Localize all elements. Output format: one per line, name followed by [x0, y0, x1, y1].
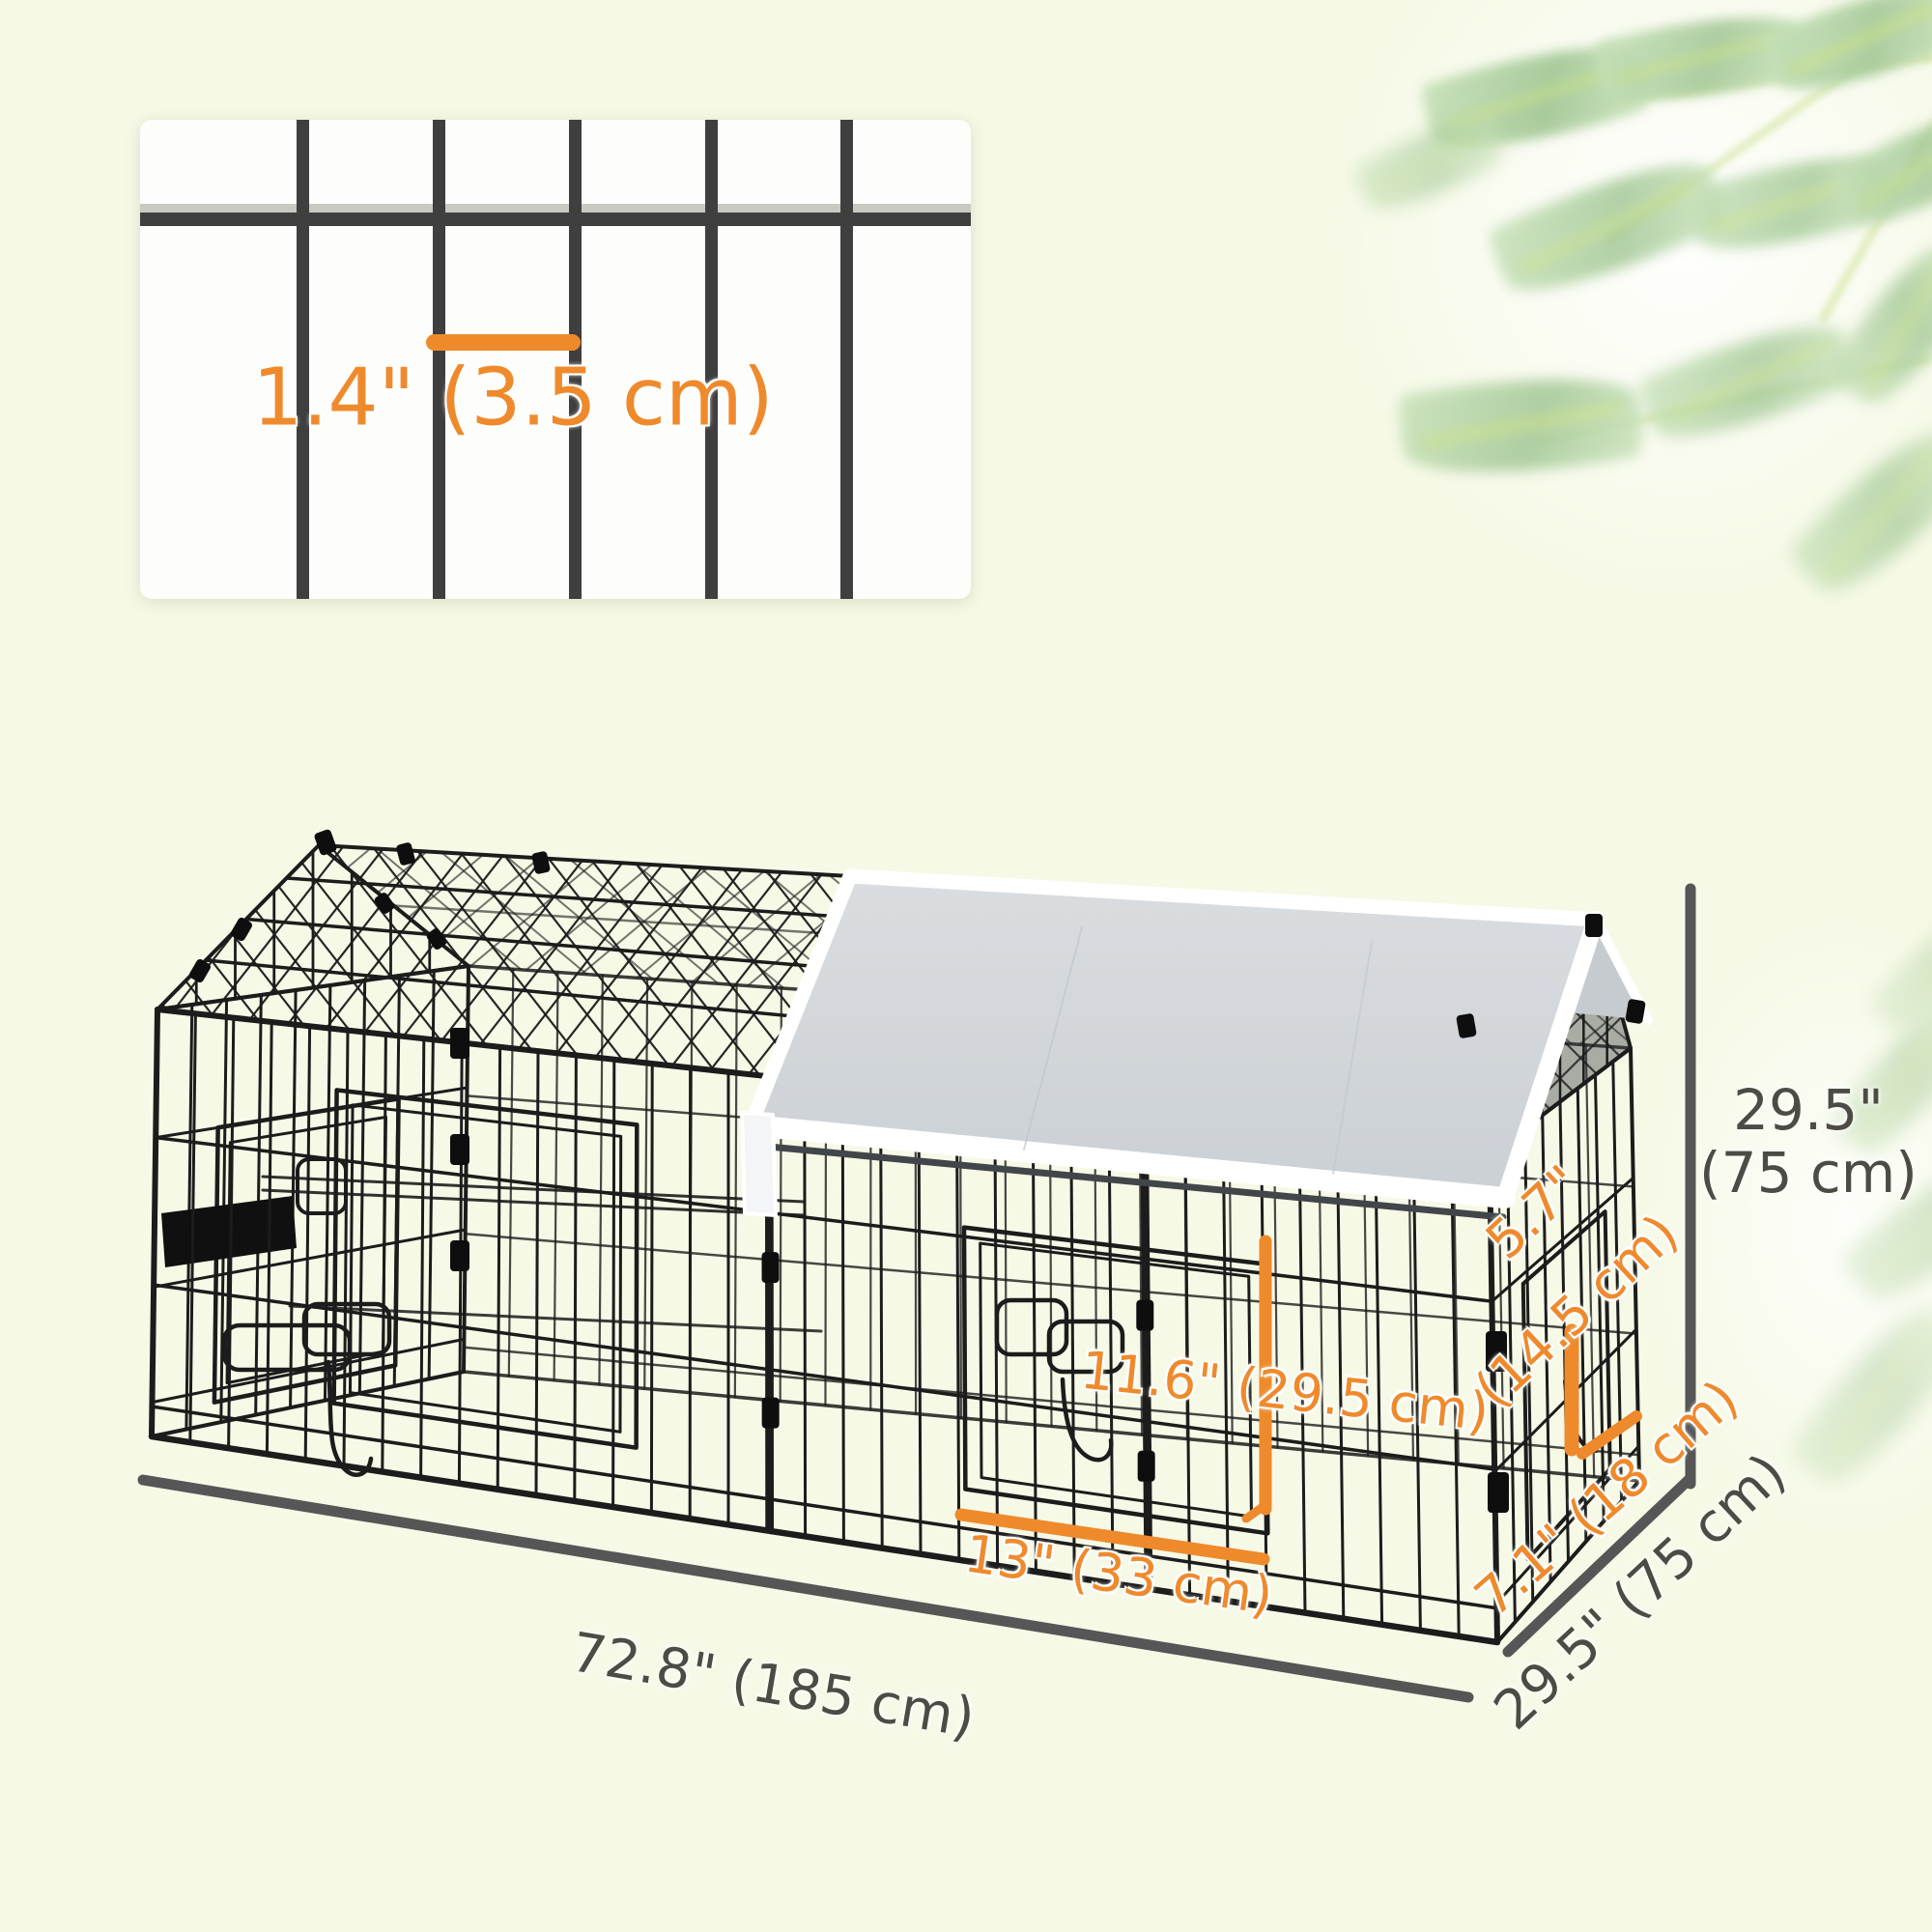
height-label: 29.5" (75 cm) — [1699, 1079, 1918, 1205]
height-label-cm: (75 cm) — [1699, 1142, 1918, 1205]
product-dimension-diagram: 1.4" (3.5 cm) 72.8" (185 cm) 29.5" (75 c… — [0, 0, 1932, 1932]
inset-measure-line — [426, 334, 581, 351]
inset-vertical-bar — [840, 120, 853, 599]
inset-spacing-label: 1.4" (3.5 cm) — [252, 353, 774, 444]
height-label-inches: 29.5" — [1699, 1079, 1918, 1142]
